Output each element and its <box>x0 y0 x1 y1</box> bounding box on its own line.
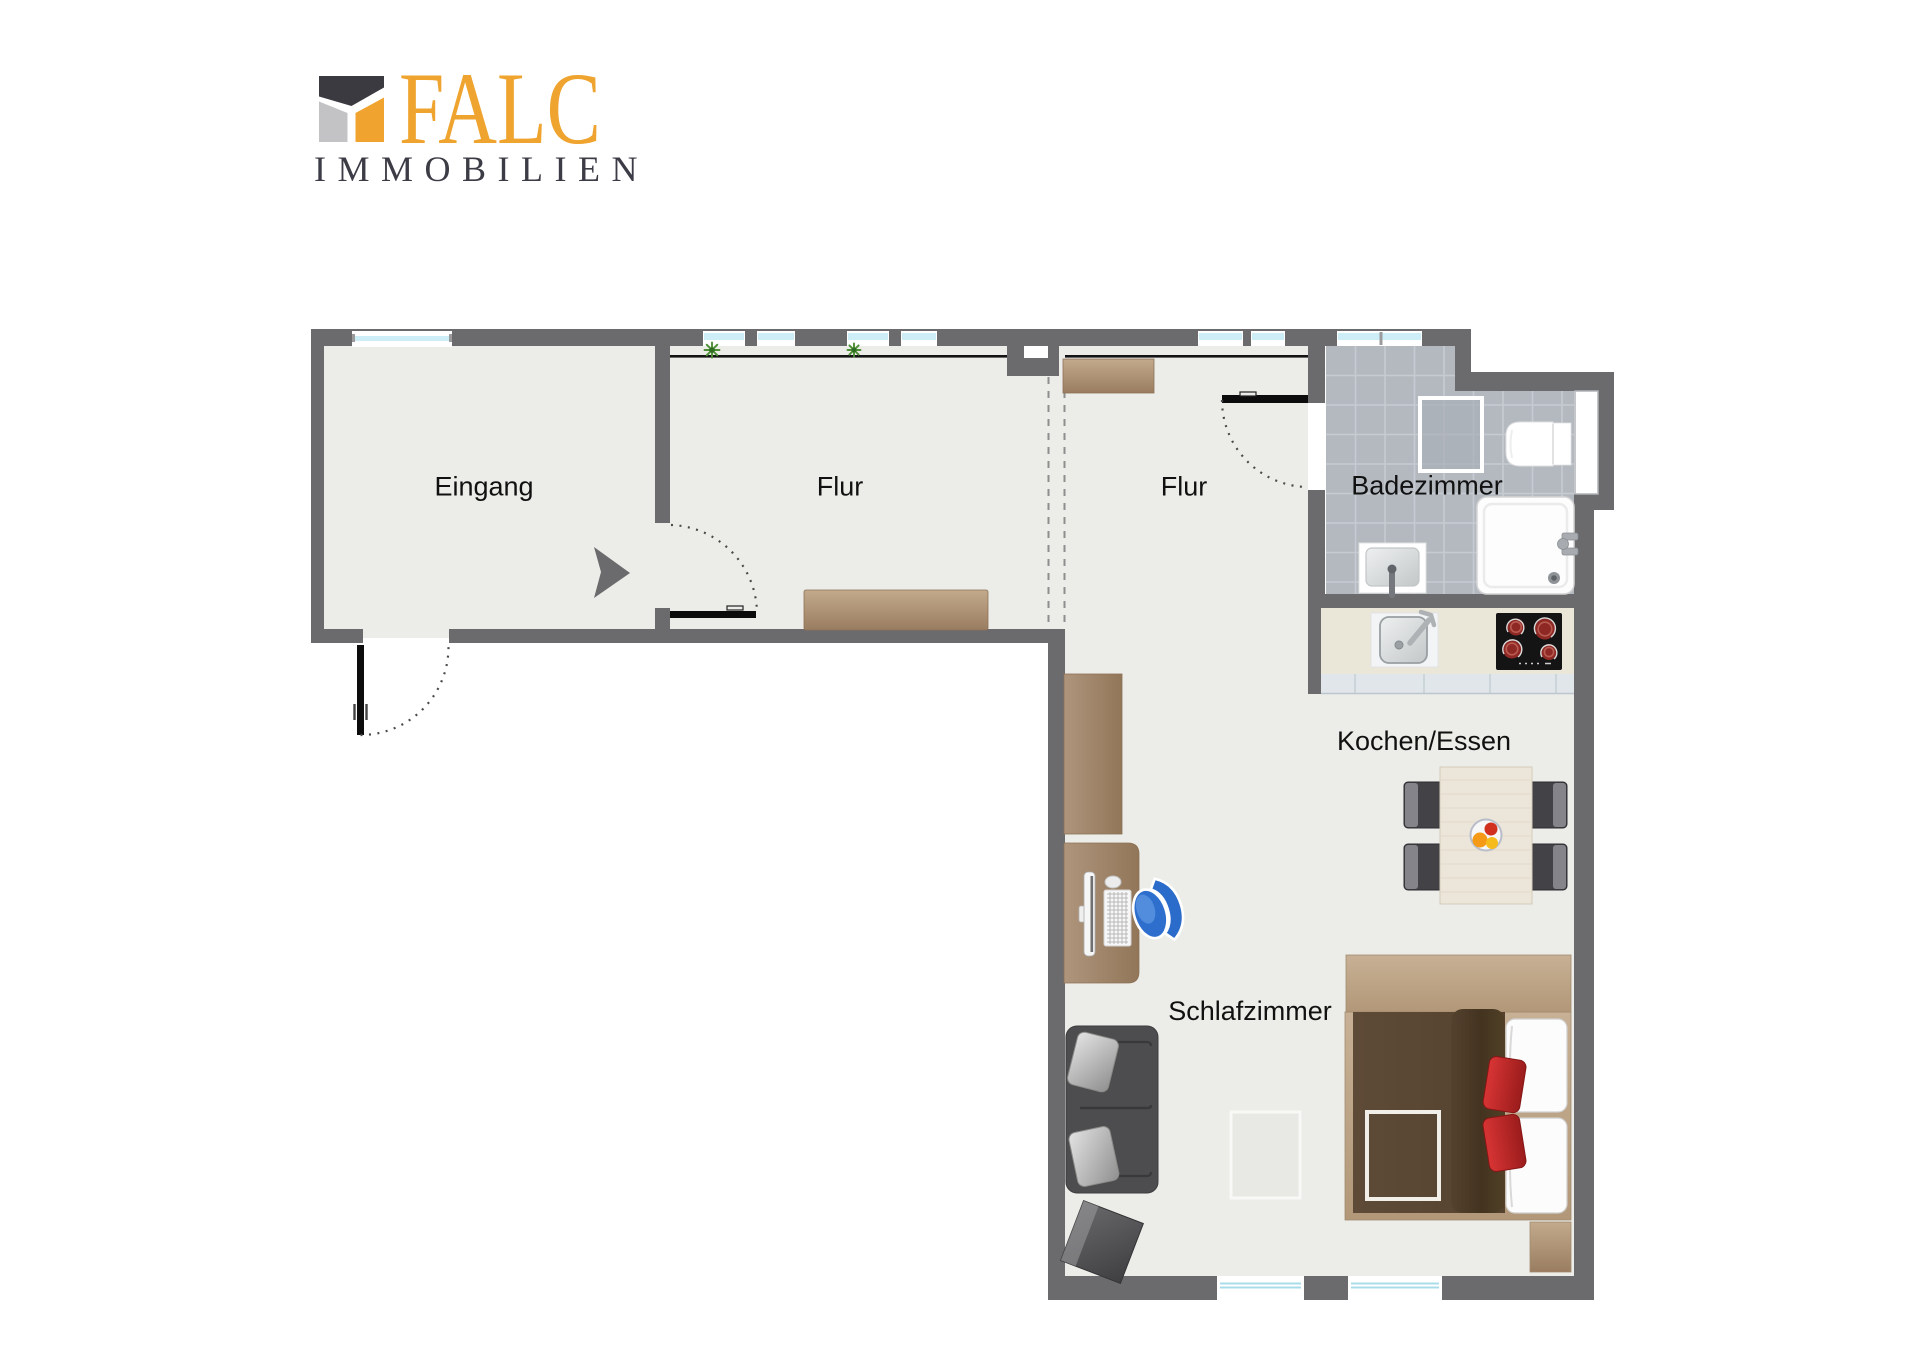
svg-text:Flur: Flur <box>1161 472 1208 502</box>
svg-text:Badezimmer: Badezimmer <box>1351 471 1503 501</box>
svg-text:Eingang: Eingang <box>434 472 533 502</box>
svg-text:Flur: Flur <box>817 472 864 502</box>
svg-text:Schlafzimmer: Schlafzimmer <box>1168 996 1332 1026</box>
svg-text:Kochen/Essen: Kochen/Essen <box>1337 726 1511 756</box>
svg-text:IMMOBILIEN: IMMOBILIEN <box>314 149 649 189</box>
